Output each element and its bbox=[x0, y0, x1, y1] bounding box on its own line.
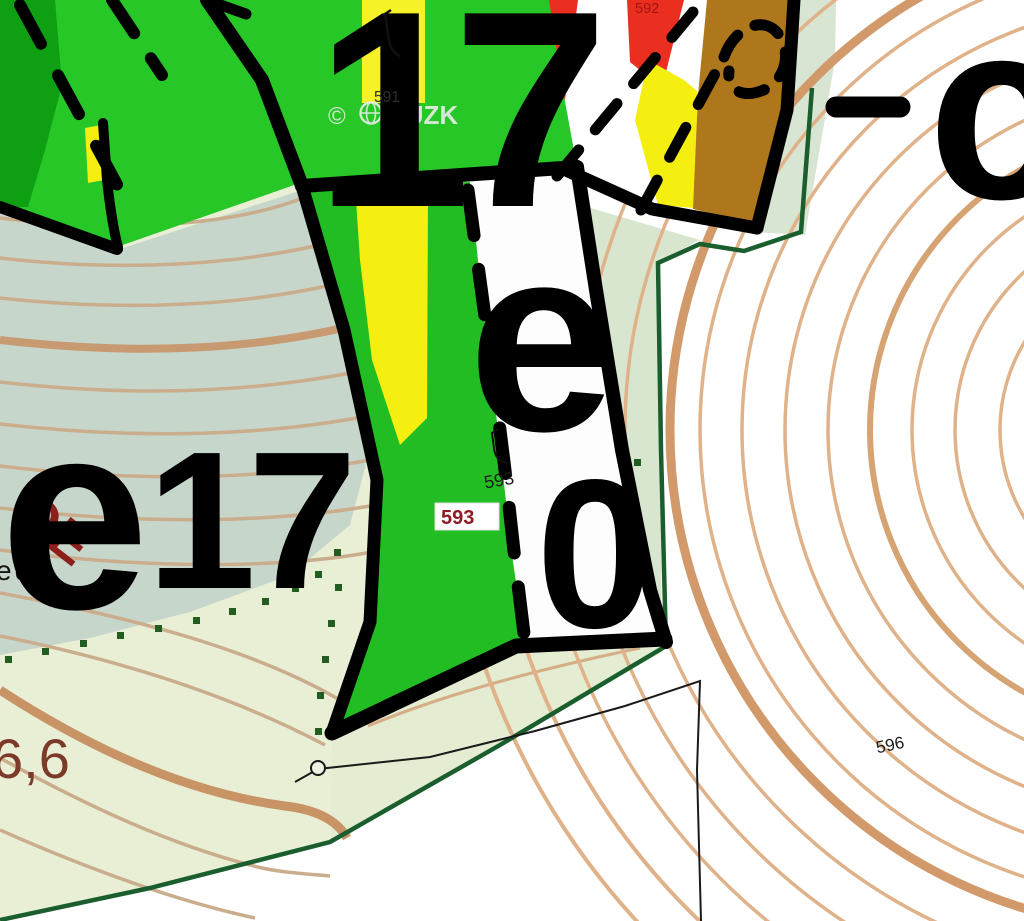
parcel-label-593-red: 593 bbox=[441, 507, 474, 529]
parcel-label-591: 591 bbox=[374, 89, 400, 106]
stand-label-c-right: c bbox=[928, 0, 1024, 253]
map-canvas[interactable]: © ČÚZK DE ece 6,6 17 e 17 e 0 c 591 592 … bbox=[0, 0, 1024, 921]
boundary-point-marker bbox=[311, 761, 325, 775]
stand-label-0-center: 0 bbox=[536, 435, 654, 672]
parcel-label-592: 592 bbox=[635, 1, 659, 17]
stand-label-17-left: 17 bbox=[147, 411, 349, 630]
contour-elevation-label: 6,6 bbox=[0, 727, 70, 790]
stand-label-e-left: e bbox=[0, 365, 149, 665]
